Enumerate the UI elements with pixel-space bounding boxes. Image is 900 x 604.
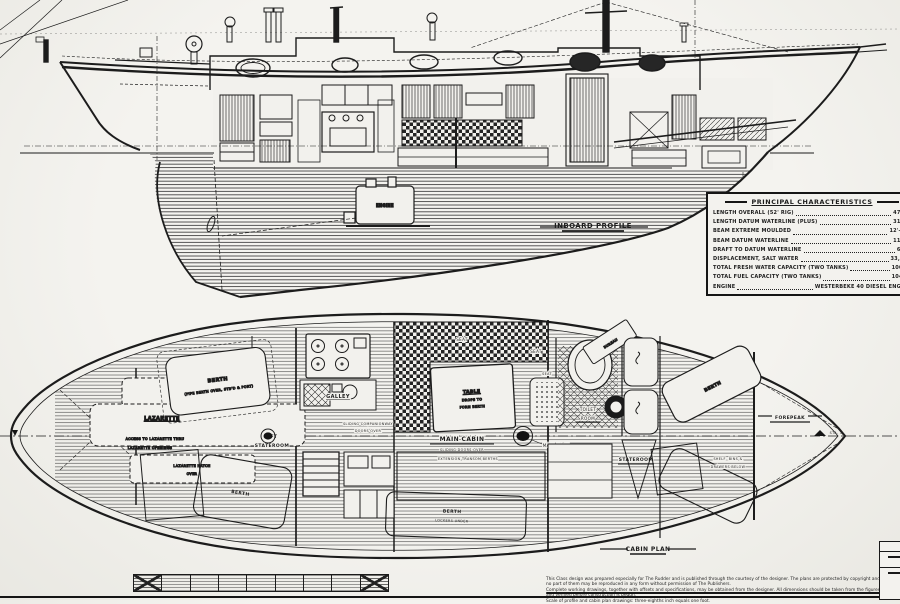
stateroom-label: Stateroom <box>619 457 654 463</box>
row-value: 47'-8" <box>893 209 900 218</box>
main-cabin-label: Main Cabin <box>440 436 485 443</box>
aft-stateroom-line2: Stateroom <box>255 443 290 449</box>
row-label: Length Overall (52' Rig) <box>713 209 794 218</box>
shelf-note-2: Drawers Below <box>711 465 746 469</box>
station-mark-bow <box>814 430 826 436</box>
title-block-divider <box>880 567 900 568</box>
principal-characteristics-table: Principal Characteristics Length Overall… <box>706 192 900 296</box>
fine-print-rule <box>546 592 883 595</box>
characteristics-row: Total Fuel Capacity (Two Tanks)104 G. <box>713 273 900 282</box>
companionway-note-2: Doors Over <box>355 429 382 433</box>
characteristics-row: Draft To Datum Waterline6'-6" <box>713 246 900 255</box>
shelf-note-1: Shelf, Bins & <box>713 457 742 461</box>
title-block <box>879 541 900 600</box>
row-value: 33,500 <box>891 255 900 264</box>
lazarette-hatch-label-1: Lazarette Hatch <box>173 464 210 468</box>
characteristics-row: Beam Extreme Moulded12'-10" <box>713 227 900 236</box>
characteristics-row: Displacement, Salt Water33,500 <box>713 255 900 264</box>
scale-cell <box>276 575 304 591</box>
yacht-plan-sheet: { "profile": { "caption": "Inboard Profi… <box>0 0 900 600</box>
characteristics-row: Total Fresh Water Capacity (Two Tanks)10… <box>713 264 900 273</box>
row-value: 100 G. <box>892 264 900 273</box>
title-block-mark <box>888 556 900 558</box>
lazarette-label: Lazarette <box>144 416 180 422</box>
characteristics-row: Length Datum Waterline (Plus)31'-9" <box>713 218 900 227</box>
scale-cell <box>191 575 219 591</box>
companionway-note-1: Sliding Companionway <box>343 422 393 426</box>
title-block-divider <box>880 551 900 552</box>
forepeak-label: Forepeak <box>775 415 805 421</box>
table-label: Table <box>463 388 481 395</box>
scale-cell <box>361 575 388 591</box>
title-block-mark <box>888 572 900 574</box>
row-label: Displacement, Salt Water <box>713 255 799 264</box>
plan-caption-text: Cabin Plan <box>626 546 671 553</box>
characteristics-row: EngineWesterbeke 40 Diesel Engine <box>713 283 900 292</box>
graphic-scale-bar <box>133 574 389 592</box>
row-value: Westerbeke 40 Diesel Engine <box>815 283 900 292</box>
stbd-dresser <box>548 444 612 498</box>
seat-label-3: Seat <box>542 372 552 376</box>
characteristics-title: Principal Characteristics <box>713 198 900 206</box>
scale-cell <box>247 575 275 591</box>
engine-label: Engine <box>376 203 394 208</box>
characteristics-row: Beam Datum Waterline11'-6" <box>713 237 900 246</box>
plan-caption: Cabin Plan <box>600 546 696 554</box>
companionway-ladder <box>303 452 339 496</box>
lazarette-hatch-label-2: Over <box>187 472 198 476</box>
row-value: 104 G. <box>892 273 900 282</box>
seat-label-1: Seat <box>456 337 468 342</box>
row-label: Beam Extreme Moulded <box>713 227 791 236</box>
profile-caption: Inboard Profile <box>540 222 648 231</box>
galley-label: Galley <box>326 394 350 400</box>
scale-cell <box>162 575 190 591</box>
row-label: Total Fresh Water Capacity (Two Tanks) <box>713 264 848 273</box>
row-value: 12'-10" <box>889 227 900 236</box>
row-label: Beam Datum Waterline <box>713 237 789 246</box>
station-label-bow: Sta. 1 <box>830 431 843 435</box>
toilet-room-label-1: Toilet <box>579 407 597 412</box>
sheet-bottom-border <box>0 596 900 598</box>
scale-cell <box>134 575 162 591</box>
scale-cell <box>219 575 247 591</box>
main-cabin-sub: Sliding Doors Over <box>440 448 484 452</box>
cabin-plan-drawing: Lazarette Access To Lazarette Thru Lazar… <box>0 300 900 565</box>
main-cabin-sub2: Extension Transom Berths <box>438 457 498 461</box>
seat-label-2: Seat <box>530 349 542 354</box>
fine-print-line-3: Scale of profile and cabin plan drawings… <box>546 599 880 604</box>
profile-caption-text: Inboard Profile <box>554 222 632 230</box>
row-label: Total Fuel Capacity (Two Tanks) <box>713 273 821 282</box>
fine-print-line-1: This Class design was prepared especiall… <box>546 577 880 588</box>
lazarette-note-1: Access To Lazarette Thru <box>126 437 185 441</box>
scale-cell <box>332 575 360 591</box>
row-label: Engine <box>713 283 735 292</box>
lazarette-note-2: Lazarette Openings <box>128 446 173 450</box>
station-mark-stern <box>12 430 18 436</box>
row-value: 31'-9" <box>893 218 900 227</box>
galley-stove: Galley <box>300 334 376 410</box>
row-value: 11'-6" <box>893 237 900 246</box>
characteristics-row: Length Overall (52' Rig)47'-8" <box>713 209 900 218</box>
toilet-room-label-2: Room <box>581 416 595 421</box>
lower-berth-label: Berth <box>443 509 462 516</box>
scale-cell <box>304 575 332 591</box>
row-label: Length Datum Waterline (Plus) <box>713 218 818 227</box>
row-label: Draft To Datum Waterline <box>713 246 802 255</box>
